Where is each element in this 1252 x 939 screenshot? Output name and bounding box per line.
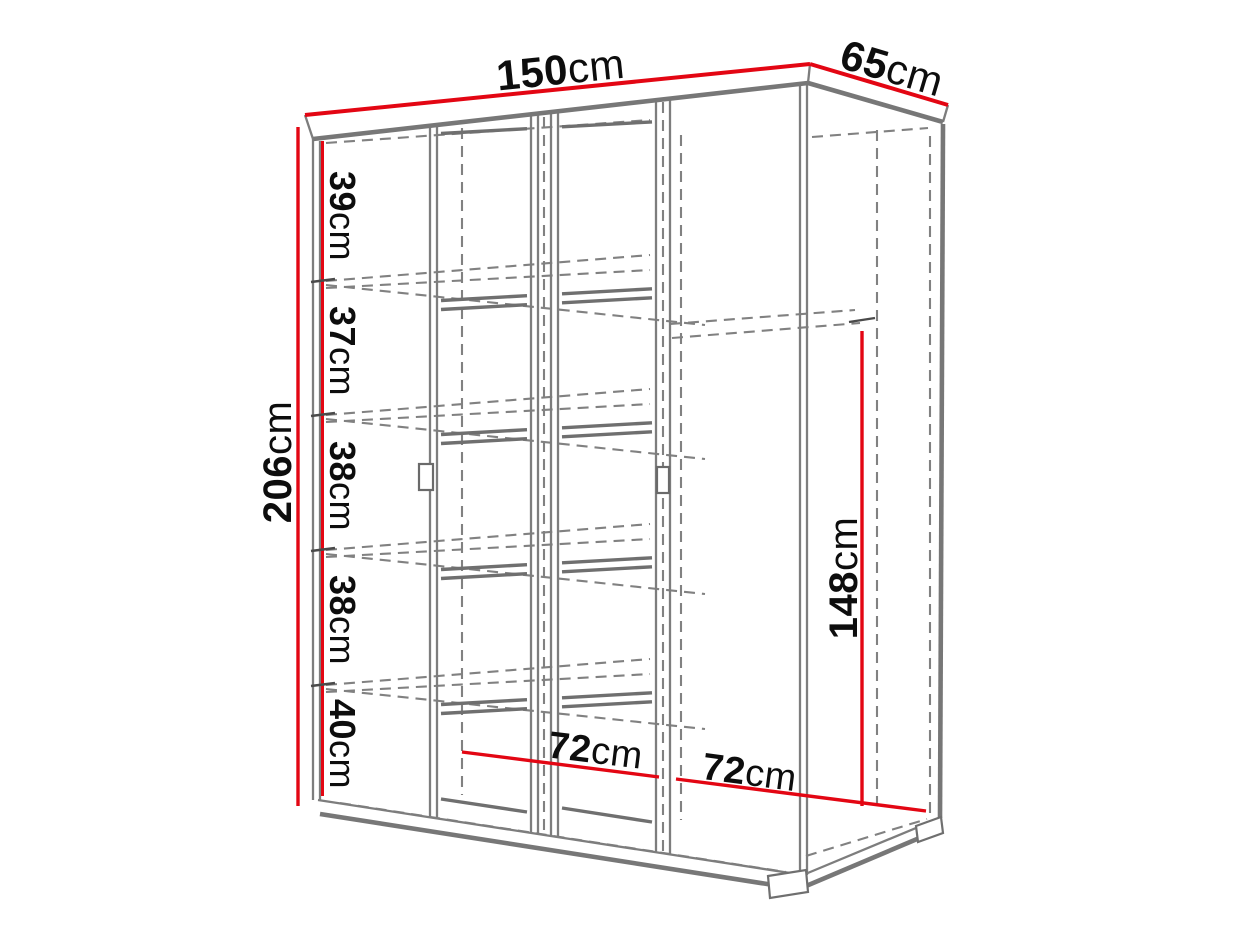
label-width-150: 150cm [494, 40, 627, 100]
label-height-206: 206cm [256, 401, 300, 524]
label-hang-148: 148cm [822, 517, 866, 640]
label-shelf-gap-37: 37cm [322, 306, 363, 396]
dimension-lines [298, 64, 948, 811]
shelf-bands [441, 122, 652, 822]
diagram-canvas: 150cm 65cm 206cm 39cm 37cm 38cm 38cm 40c… [0, 0, 1252, 939]
label-shelf-gap-38a: 38cm [322, 441, 363, 531]
dimension-labels: 150cm 65cm 206cm 39cm 37cm 38cm 38cm 40c… [256, 31, 949, 800]
label-shelf-gap-40: 40cm [322, 699, 363, 789]
label-section-72-right: 72cm [700, 746, 800, 800]
wardrobe-dimension-diagram: 150cm 65cm 206cm 39cm 37cm 38cm 38cm 40c… [0, 0, 1252, 939]
label-shelf-gap-38b: 38cm [322, 575, 363, 665]
cabinet-feet [768, 817, 943, 898]
label-section-72-left: 72cm [546, 724, 645, 777]
tick-marks [311, 279, 875, 686]
label-shelf-gap-39: 39cm [322, 171, 363, 261]
